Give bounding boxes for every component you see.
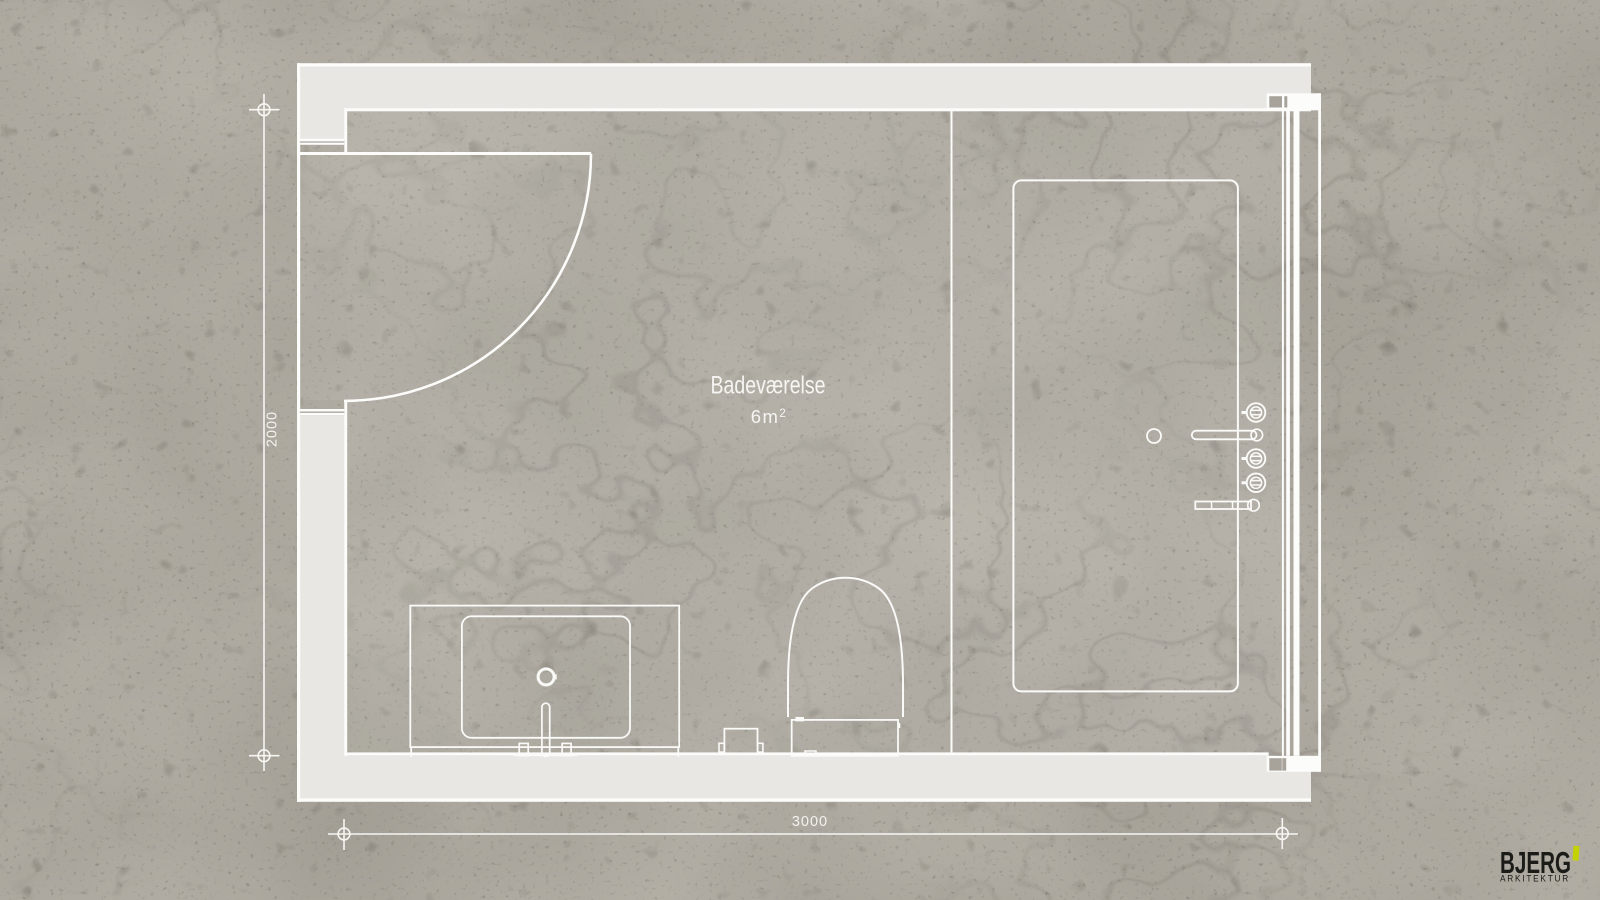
svg-text:3000: 3000 bbox=[792, 814, 828, 830]
svg-text:ARKITEKTUR: ARKITEKTUR bbox=[1500, 874, 1570, 885]
svg-text:2000: 2000 bbox=[265, 411, 281, 447]
svg-text:Badeværelse: Badeværelse bbox=[711, 372, 826, 400]
